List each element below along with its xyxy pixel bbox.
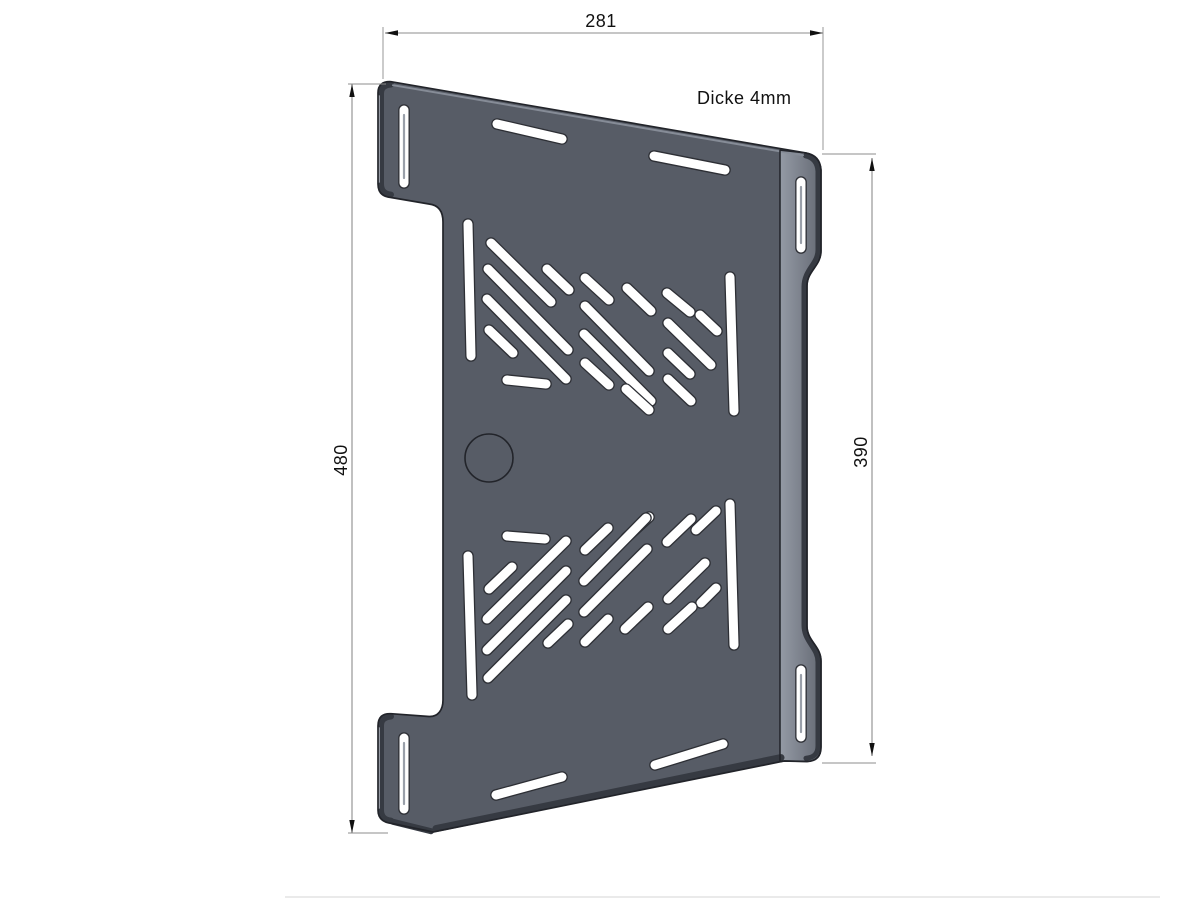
dim-label-left-height: 480 [331, 444, 351, 476]
plate [378, 82, 821, 832]
drawing-page: 281 480 390 Dicke 4mm [0, 0, 1200, 900]
dim-label-right-height: 390 [851, 436, 871, 468]
dim-label-top-width: 281 [585, 11, 617, 31]
plate-face [378, 82, 821, 832]
technical-drawing: 281 480 390 Dicke 4mm [0, 0, 1200, 900]
thickness-note: Dicke 4mm [697, 88, 792, 108]
